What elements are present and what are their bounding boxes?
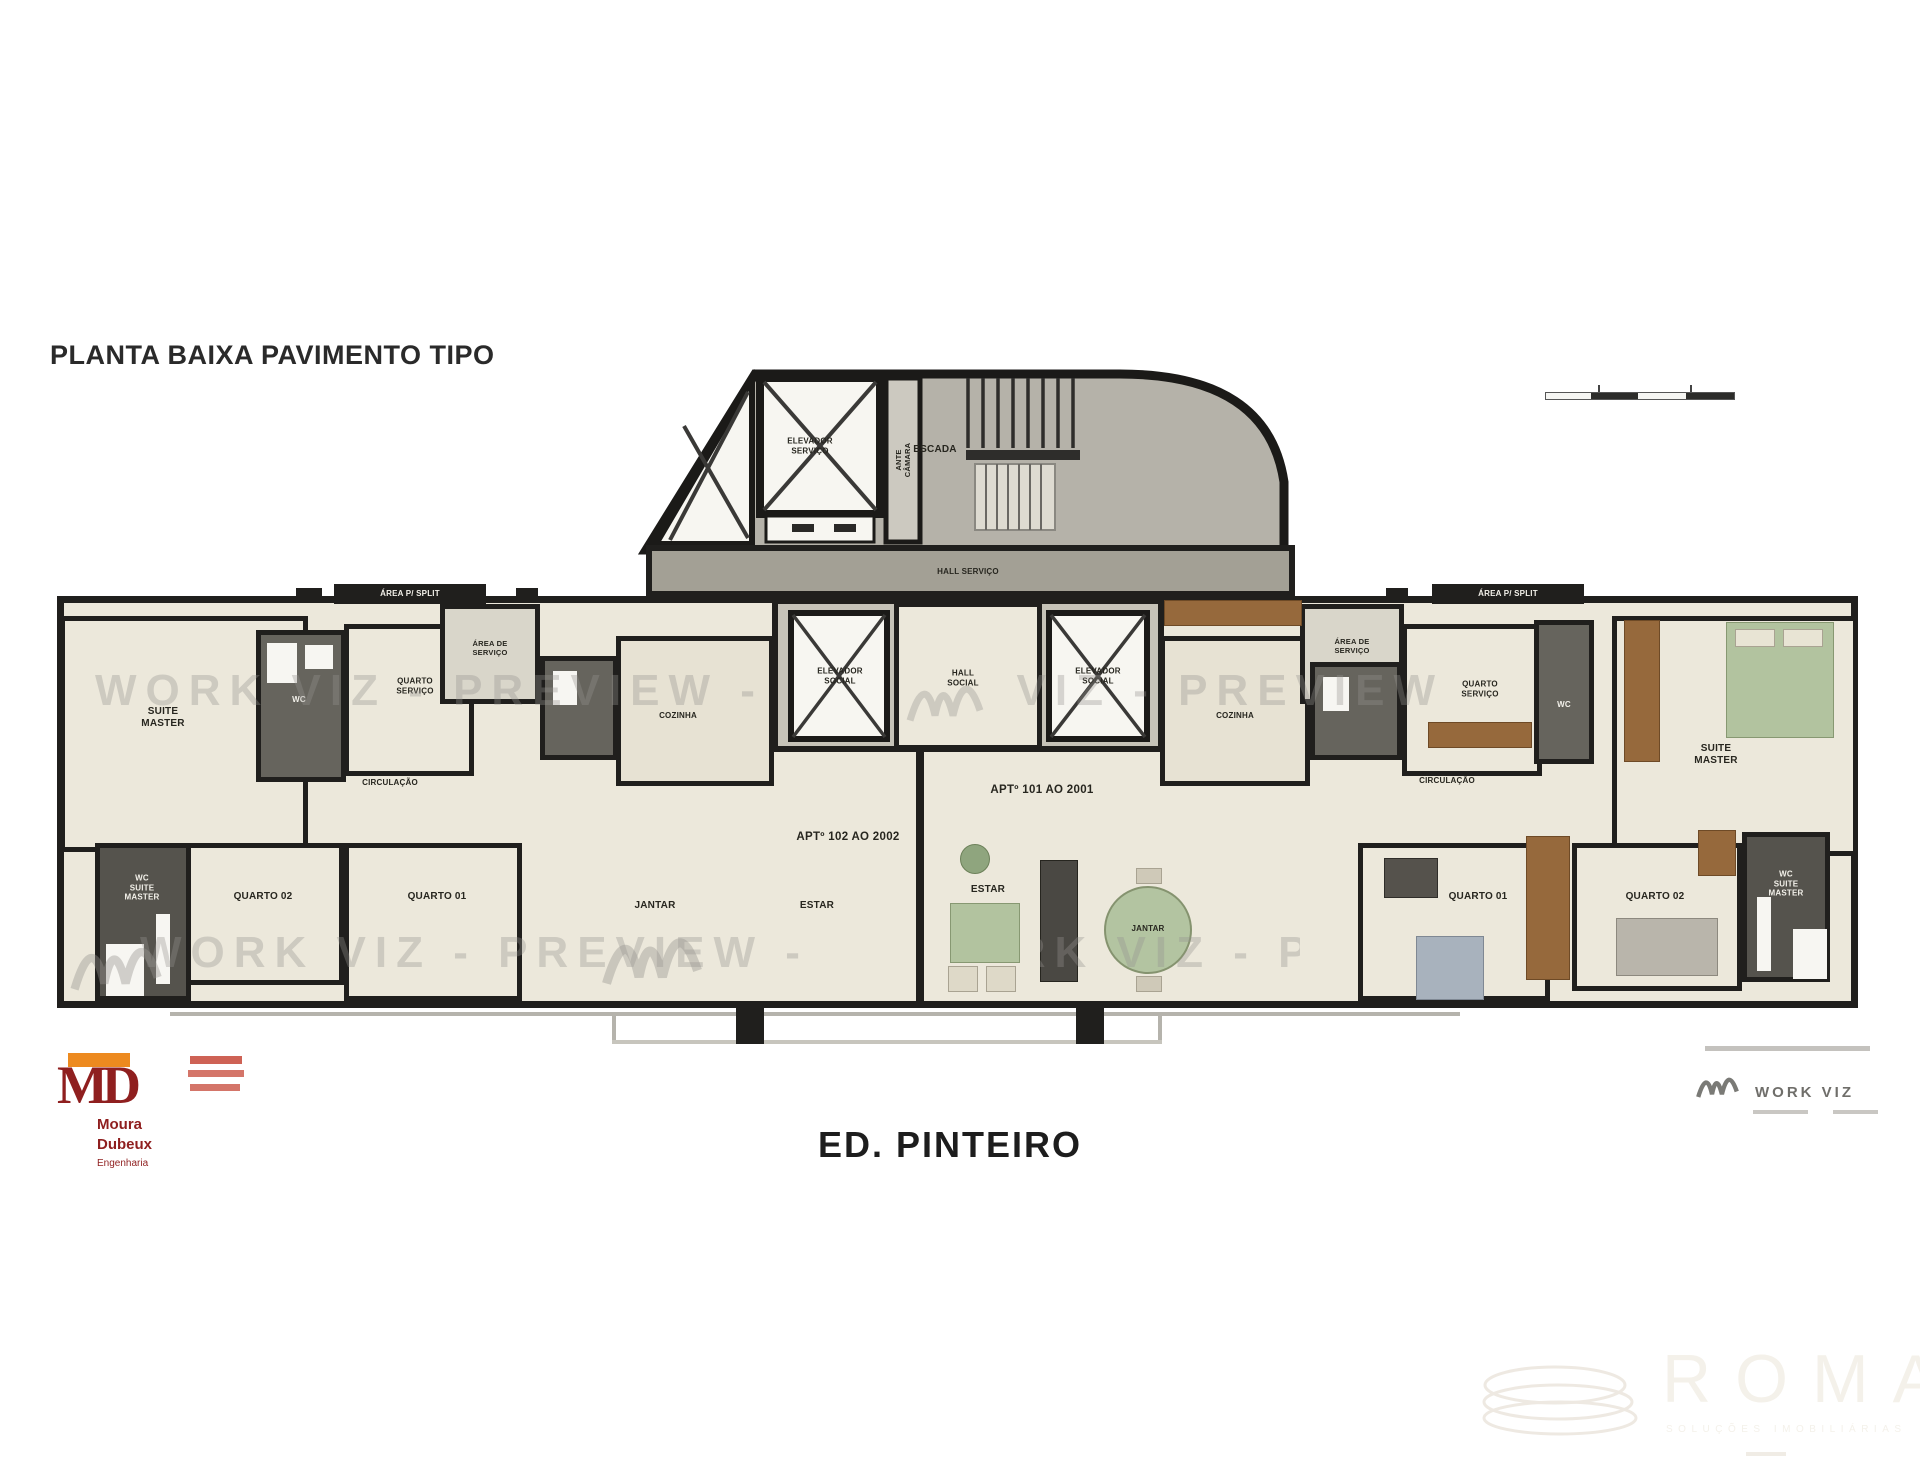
watermark-clip: WORK VIZ - PREVIEW - — [1000, 666, 1470, 722]
desk — [1384, 858, 1438, 898]
room-label-circulacao-101: CIRCULAÇÃO — [1419, 776, 1475, 786]
roma-watermark: ROMA SOLUÇÕES IMOBILIÁRIAS — [1470, 1340, 1920, 1470]
room-label-escada: ESCADA — [913, 444, 956, 456]
bath-fixture — [553, 671, 577, 705]
scale-segment — [1546, 393, 1591, 399]
md-logo-name-line1: Moura — [97, 1116, 142, 1133]
room-label-estar-102: ESTAR — [800, 900, 834, 912]
workviz-swirl-icon — [1695, 1064, 1751, 1108]
watermark-swirl-icon — [68, 918, 188, 1013]
room-wc-suite-102 — [256, 630, 346, 782]
room-quarto-01-102 — [344, 843, 522, 1001]
room-label-area-split-102: ÁREA P/ SPLIT — [380, 589, 440, 599]
unit-label-102: APTº 102 AO 2002 — [796, 831, 899, 845]
balcony-edge — [1158, 1012, 1162, 1042]
room-label-elevador-servico: ELEVADOR SERVIÇO — [787, 436, 832, 455]
room-wc-suite-master-101 — [1742, 832, 1830, 982]
room-label-wc-suite-102: WC — [292, 695, 306, 705]
bath-fixture — [1793, 929, 1827, 979]
armchair — [948, 966, 978, 992]
wall-stub — [1076, 1004, 1104, 1044]
plant — [960, 844, 990, 874]
room-label-suite-master-101: SUITE MASTER — [1694, 743, 1737, 767]
md-logo-name-line2: Dubeux — [97, 1136, 152, 1153]
md-logo-monogram: MD — [57, 1054, 135, 1116]
bath-fixture — [267, 643, 297, 683]
room-label-suite-master-102: SUITE MASTER — [141, 706, 184, 730]
room-label-estar-101: ESTAR — [971, 884, 1005, 896]
md-logo-small-text — [190, 1084, 240, 1091]
balcony-edge — [612, 1012, 616, 1042]
room-label-circulacao-102: CIRCULAÇÃO — [362, 778, 418, 788]
room-label-elevador-social-left: ELEVADOR SOCIAL — [817, 666, 862, 685]
md-logo-small-text — [188, 1070, 244, 1077]
bed-quarto-01 — [1416, 936, 1484, 1000]
room-label-wc-suite-master-102: WC SUITE MASTER — [125, 874, 160, 903]
bed-suite-master — [1726, 622, 1834, 738]
wall-stub — [1386, 588, 1408, 600]
armchair — [986, 966, 1016, 992]
sofa — [950, 903, 1020, 963]
building-name: ED. PINTEIRO — [818, 1124, 1082, 1166]
watermark-clip: WORK VIZ - PREVIEW - — [1040, 928, 1300, 984]
room-label-quarto-02-101: QUARTO 02 — [1626, 891, 1685, 903]
room-label-quarto-02-102: QUARTO 02 — [234, 891, 293, 903]
watermark-text: WORK VIZ - PREVIEW - — [1040, 928, 1300, 978]
pillow — [1735, 629, 1775, 647]
workviz-small-bar — [1753, 1110, 1808, 1114]
scale-tick — [1690, 385, 1692, 392]
kitchen-counter — [1164, 600, 1302, 626]
room-label-quarto-01-102: QUARTO 01 — [408, 891, 467, 903]
graphic-scale-bar — [1545, 392, 1735, 400]
wall-stub — [736, 1004, 764, 1044]
workviz-logo-name: WORK VIZ — [1755, 1084, 1854, 1101]
bath-fixture — [1757, 897, 1771, 971]
room-wc-101 — [1534, 620, 1594, 764]
roma-small-bar — [1746, 1452, 1786, 1456]
wardrobe — [1698, 830, 1736, 876]
scale-segment — [1686, 393, 1734, 399]
floor-plan-sheet: PLANTA BAIXA PAVIMENTO TIPO ED. PINTEIRO — [0, 0, 1920, 1478]
bed-servico — [1428, 722, 1532, 748]
room-label-cozinha-102: COZINHA — [659, 711, 697, 721]
watermark-swirl-icon — [905, 658, 1005, 743]
room-label-quarto-servico-102: QUARTO SERVIÇO — [396, 676, 433, 695]
scale-segment — [1591, 393, 1639, 399]
room-label-area-split-101: ÁREA P/ SPLIT — [1478, 589, 1538, 599]
wall-segment — [916, 746, 924, 1008]
room-label-area-servico-101: ÁREA DE SERVIÇO — [1334, 637, 1369, 655]
scale-tick — [1598, 385, 1600, 392]
pillow — [1783, 629, 1823, 647]
roma-spiral-icon — [1470, 1350, 1650, 1450]
room-label-wc-101: WC — [1557, 700, 1571, 710]
room-wc-servico-102 — [540, 656, 618, 760]
roma-name: ROMA — [1662, 1340, 1920, 1418]
unit-label-101: APTº 101 AO 2001 — [990, 784, 1093, 798]
watermark-swirl-icon — [600, 905, 730, 1010]
wall-stub — [516, 588, 538, 600]
room-label-ante-camara: ANTE CÂMARA — [894, 443, 912, 478]
bed-quarto-02 — [1616, 918, 1718, 976]
md-logo: MD Moura Dubeux Engenharia — [57, 1048, 307, 1188]
roma-tagline: SOLUÇÕES IMOBILIÁRIAS — [1666, 1424, 1907, 1435]
workviz-small-bar — [1833, 1110, 1878, 1114]
workviz-tagline-bar — [1705, 1046, 1870, 1051]
scale-segment — [1638, 393, 1686, 399]
page-title: PLANTA BAIXA PAVIMENTO TIPO — [50, 340, 495, 371]
room-label-hall-servico: HALL SERVIÇO — [937, 567, 999, 577]
wardrobe — [1624, 620, 1660, 762]
bath-fixture — [305, 645, 333, 669]
md-logo-small-text — [190, 1056, 242, 1064]
room-quarto-02-102 — [186, 843, 344, 985]
workviz-logo: WORK VIZ — [1695, 1044, 1895, 1124]
balcony-edge — [170, 1012, 1460, 1016]
wardrobe — [1526, 836, 1570, 980]
room-label-wc-suite-master-101: WC SUITE MASTER — [1769, 870, 1804, 899]
wall-stub — [296, 588, 322, 602]
room-label-area-servico-102: ÁREA DE SERVIÇO — [472, 639, 507, 657]
md-logo-name-line3: Engenharia — [97, 1158, 148, 1169]
dining-chair — [1136, 868, 1162, 884]
watermark-text: WORK VIZ - PREVIEW - — [1000, 666, 1470, 716]
room-label-quarto-01-101: QUARTO 01 — [1449, 891, 1508, 903]
